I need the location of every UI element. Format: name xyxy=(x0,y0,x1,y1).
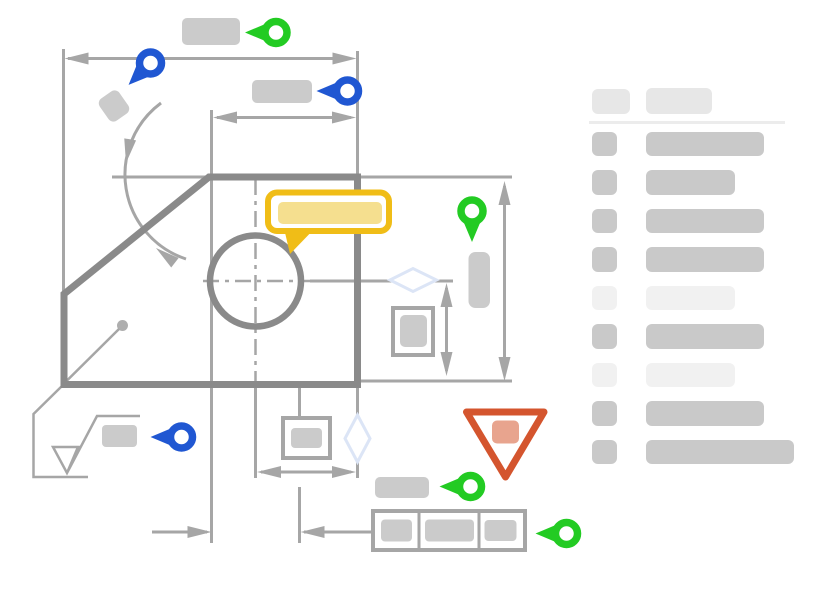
legend-divider xyxy=(589,121,785,124)
legend-row-icon-placeholder xyxy=(592,247,617,272)
legend-row-2[interactable] xyxy=(592,170,809,195)
legend-row-icon-placeholder xyxy=(592,363,617,388)
legend-row-8[interactable] xyxy=(592,401,809,426)
arrowhead xyxy=(257,466,281,478)
arrowhead xyxy=(301,526,325,538)
legend-row-label-placeholder xyxy=(646,401,764,426)
pin-blue-angle[interactable] xyxy=(121,47,166,92)
diamond-marker-right xyxy=(390,269,437,292)
legend-row-4[interactable] xyxy=(592,247,809,272)
pin-blue-width-dimension[interactable] xyxy=(317,80,359,102)
legend-row-icon-placeholder xyxy=(592,286,617,311)
tolerance-label-placeholder xyxy=(375,477,429,498)
pin-blue-surface-finish[interactable] xyxy=(151,426,193,448)
arrowhead xyxy=(333,53,357,65)
diamond-marker-bottom xyxy=(345,415,370,462)
legend-row-1[interactable] xyxy=(592,132,809,157)
warning-triangle[interactable] xyxy=(467,412,545,477)
feature-control-frame xyxy=(373,511,525,550)
arrowhead xyxy=(213,112,237,124)
arrowhead xyxy=(332,466,356,478)
arrowhead xyxy=(332,112,356,124)
illustration-stage xyxy=(0,0,827,591)
legend-rows xyxy=(589,132,809,465)
datum-symbol-right xyxy=(393,308,433,355)
legend-row-icon-placeholder xyxy=(592,401,617,426)
datum-symbol-bottom xyxy=(283,418,330,458)
legend-row-icon-placeholder xyxy=(592,209,617,234)
legend-row-label-placeholder xyxy=(646,363,735,388)
legend-row-9[interactable] xyxy=(592,440,809,465)
legend-row-label-placeholder xyxy=(646,440,794,465)
legend-row-label-placeholder xyxy=(646,209,764,234)
pin-green-height-dimension[interactable] xyxy=(461,200,483,242)
legend-header xyxy=(589,88,809,114)
legend-row-label-placeholder xyxy=(646,247,764,272)
angle-arc-arrowhead-upper xyxy=(120,138,136,164)
legend-row-icon-placeholder xyxy=(592,324,617,349)
legend-row-5[interactable] xyxy=(592,286,809,311)
arrowhead xyxy=(65,53,89,65)
height-label-placeholder xyxy=(469,252,491,308)
legend-panel xyxy=(589,88,809,464)
pin-green-datum[interactable] xyxy=(440,476,482,498)
legend-row-icon-placeholder xyxy=(592,170,617,195)
arrowhead xyxy=(441,352,453,376)
pin-green-top-dimension[interactable] xyxy=(245,22,287,44)
arrowhead xyxy=(441,283,453,307)
legend-header-badge xyxy=(592,89,630,114)
legend-row-label-placeholder xyxy=(646,286,735,311)
angle-label-placeholder xyxy=(96,88,131,124)
legend-row-label-placeholder xyxy=(646,132,764,157)
legend-row-7[interactable] xyxy=(592,363,809,388)
width-dimension-label-placeholder xyxy=(252,80,312,103)
legend-row-6[interactable] xyxy=(592,324,809,349)
pin-green-control-frame[interactable] xyxy=(536,523,578,545)
surface-finish-label-placeholder xyxy=(102,425,137,447)
legend-row-3[interactable] xyxy=(592,209,809,234)
legend-row-icon-placeholder xyxy=(592,132,617,157)
arrowhead xyxy=(499,181,511,205)
arrowhead xyxy=(188,526,212,538)
arrowhead xyxy=(499,357,511,381)
legend-header-title xyxy=(646,88,712,114)
top-dimension-label-placeholder xyxy=(182,18,240,45)
legend-row-label-placeholder xyxy=(646,324,764,349)
legend-row-label-placeholder xyxy=(646,170,735,195)
legend-row-icon-placeholder xyxy=(592,440,617,465)
